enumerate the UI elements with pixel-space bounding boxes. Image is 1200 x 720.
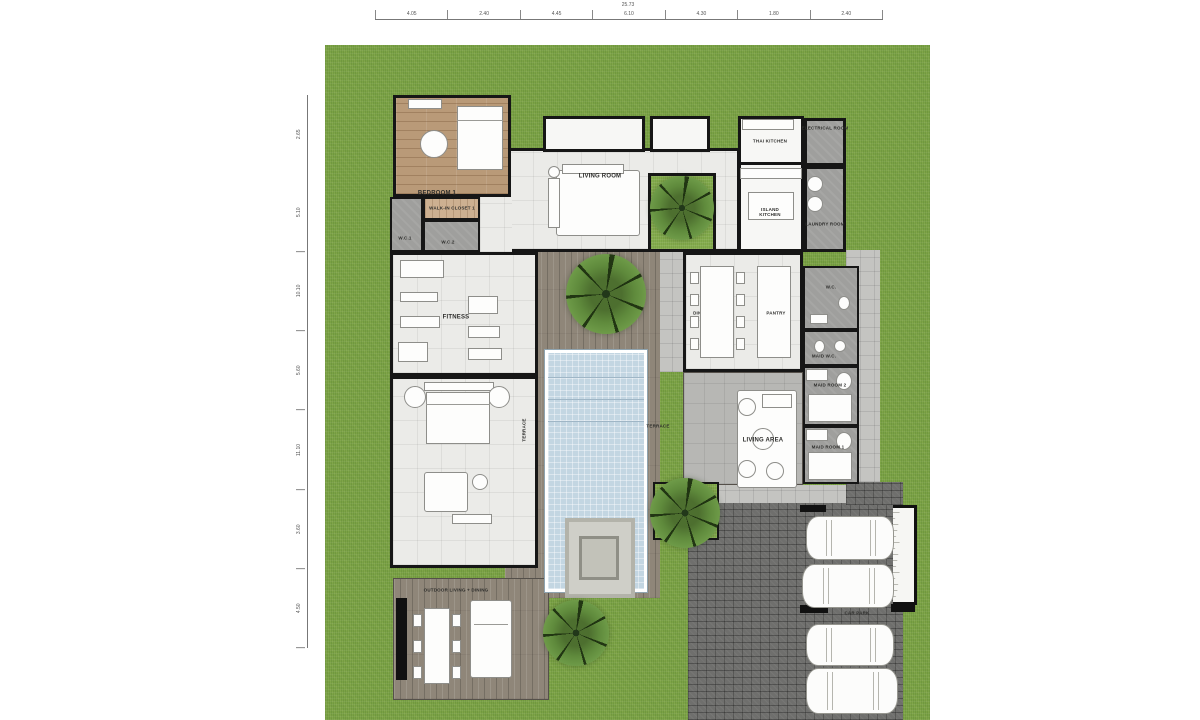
gym-bench [400, 316, 440, 328]
side-table [548, 166, 560, 178]
shelf [806, 429, 828, 441]
bed [457, 106, 503, 170]
label-maid-wc: MAID W.C. [812, 353, 836, 358]
room-kitchen-block [738, 116, 804, 252]
sofa [562, 164, 624, 174]
gym-mat [468, 348, 502, 360]
room-entry-strip-2 [650, 116, 710, 152]
label-terrace-east: TERRACE [646, 423, 669, 428]
outdoor-chair [413, 614, 422, 627]
entry-gate [893, 505, 917, 605]
tree-icon [650, 176, 714, 240]
dimension-top-line [375, 19, 883, 20]
bed [426, 392, 490, 444]
bed [808, 452, 852, 480]
lounge-chair [766, 462, 784, 480]
treadmill [400, 260, 444, 278]
gym-bench [468, 326, 500, 338]
sofa [424, 472, 468, 512]
label-walk-in-closet: WALK-IN CLOSET 1 [429, 205, 475, 210]
label-terrace-west: TERRACE [521, 418, 526, 441]
dining-chair [690, 338, 699, 350]
side-table [472, 474, 488, 490]
kitchen-counter [740, 168, 802, 179]
toilet [838, 296, 850, 310]
label-island-kitchen: ISLAND KITCHEN [759, 207, 780, 217]
dining-chair [736, 272, 745, 284]
room-wc1 [390, 197, 423, 252]
lounge-bench [762, 394, 792, 408]
dimension-left-line [307, 95, 308, 648]
outdoor-chair [452, 666, 461, 679]
armchair [420, 130, 448, 158]
tv-console [452, 514, 492, 524]
shelf [806, 369, 828, 381]
washing-machine [807, 196, 823, 212]
room-entry-strip-1 [543, 116, 645, 152]
kitchen-counter [742, 119, 794, 130]
floor-plan-canvas: 25.73 4.052.404.456.104.301.802.40 2.655… [0, 0, 1200, 720]
label-fitness: FITNESS [443, 315, 470, 322]
label-wc: W.C. [826, 284, 837, 289]
label-car-park: CAR PARK [844, 610, 869, 615]
carport-wall-right [891, 604, 915, 612]
pool-steps [565, 518, 635, 598]
exercise-bike [398, 342, 428, 362]
label-living-room: LIVING ROOM [579, 174, 622, 181]
pouf [404, 386, 426, 408]
outdoor-chair [413, 640, 422, 653]
dining-chair [736, 316, 745, 328]
pavement-west-strip [658, 252, 685, 372]
dining-chair [690, 272, 699, 284]
car-icon [802, 564, 894, 608]
label-outdoor-living-dining: OUTDOOR LIVING + DINING [424, 587, 489, 592]
sink [810, 314, 828, 324]
gym-bench [400, 292, 438, 302]
hall-nook [480, 197, 512, 252]
kitchen-divider-wall [740, 162, 802, 165]
tree-icon [566, 254, 646, 334]
headboard-shelf [424, 382, 494, 391]
label-pantry: PANTRY [766, 310, 785, 315]
outdoor-chair [452, 640, 461, 653]
dining-chair [690, 316, 699, 328]
car-icon [806, 668, 898, 714]
toilet [814, 340, 825, 353]
label-wc2: W.C.2 [441, 239, 454, 244]
sink [834, 340, 846, 352]
dining-chair [736, 294, 745, 306]
outdoor-chair [452, 614, 461, 627]
label-maid-room1: MAID ROOM 1 [812, 444, 845, 449]
dimension-top-segments: 4.052.404.456.104.301.802.40 [375, 10, 883, 19]
sofa [548, 178, 560, 228]
label-bedroom1: BEDROOM 1 [418, 191, 456, 198]
outdoor-chair [413, 666, 422, 679]
bed [808, 394, 852, 422]
label-living-area: LIVING AREA [743, 438, 784, 445]
lounge-chair [738, 460, 756, 478]
outdoor-deck-planter-wall [396, 598, 407, 680]
tree-icon [543, 600, 609, 666]
label-laundry-room: LAUNDRY ROOM [805, 221, 844, 226]
daybed [470, 600, 512, 678]
washing-machine [807, 176, 823, 192]
label-wc1: W.C.1 [398, 235, 411, 240]
driveway-cobblestone-upper [846, 482, 903, 505]
carport-wall-top [800, 505, 826, 512]
car-icon [806, 624, 894, 666]
gym-station [468, 296, 498, 314]
lounge-chair [738, 398, 756, 416]
tree-icon [650, 478, 720, 548]
pouf [488, 386, 510, 408]
dining-chair [690, 294, 699, 306]
dining-table [700, 266, 734, 358]
label-thai-kitchen: THAI KITCHEN [753, 138, 787, 143]
car-icon [806, 516, 894, 560]
dresser [408, 99, 442, 109]
label-maid-room2: MAID ROOM 2 [814, 382, 847, 387]
room-wc2 [423, 220, 480, 252]
room-maid-wc [803, 330, 859, 366]
label-electrical-room: ELECTRICAL ROOM [802, 125, 849, 130]
dimension-left-segments: 2.655.1010.105.6011.103.604.50 [296, 95, 305, 648]
outdoor-dining-table [424, 608, 450, 684]
dimension-top-total: 25.73 [622, 2, 635, 8]
dining-chair [736, 338, 745, 350]
